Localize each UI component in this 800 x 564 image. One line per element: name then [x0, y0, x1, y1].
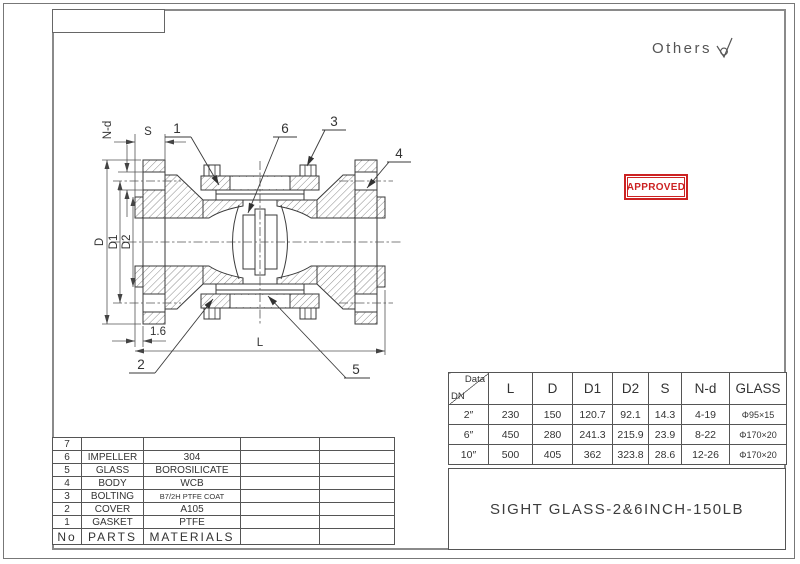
- drawing-sheet: Others APPROVED: [0, 0, 800, 564]
- dimension-data-table: Data DN L D D1 D2 S N-d GLASS 2″ 230 150…: [448, 372, 787, 465]
- left-raised-face-top: [135, 197, 143, 218]
- empty-cell: [320, 464, 395, 477]
- boss-bottom-left: [203, 266, 243, 284]
- data-row-6in: 6″ 450 280 241.3 215.9 23.9 8-22 Φ170×20: [449, 425, 787, 445]
- part-name: GLASS: [82, 464, 144, 477]
- cell-glass: Φ170×20: [730, 425, 787, 445]
- cell-glass: Φ170×20: [730, 445, 787, 465]
- empty-cell: [241, 529, 320, 545]
- part-name: BODY: [82, 477, 144, 490]
- parts-col-materials: MATERIALS: [144, 529, 241, 545]
- empty-cell: [320, 529, 395, 545]
- callout-3: 3: [330, 114, 338, 129]
- dim-label-d: D: [94, 238, 106, 246]
- parts-col-no: No: [53, 529, 82, 545]
- left-raised-face-bottom: [135, 266, 143, 287]
- dim-label-rf: 1.6: [150, 326, 166, 338]
- cell-nd: 4-19: [682, 405, 730, 425]
- cell-s: 28.6: [649, 445, 682, 465]
- empty-cell: [241, 451, 320, 464]
- part-material: B7/2H PTFE COAT: [144, 490, 241, 503]
- parts-row-7: 7: [53, 438, 395, 451]
- cell-d1: 120.7: [573, 405, 613, 425]
- part-no: 6: [53, 451, 82, 464]
- part-name: [82, 438, 144, 451]
- data-table-corner-cell: Data DN: [449, 373, 489, 405]
- part-material: BOROSILICATE: [144, 464, 241, 477]
- part-no: 5: [53, 464, 82, 477]
- empty-cell: [241, 438, 320, 451]
- cell-dn: 6″: [449, 425, 489, 445]
- part-name: IMPELLER: [82, 451, 144, 464]
- part-no: 7: [53, 438, 82, 451]
- dim-label-l: L: [257, 337, 264, 349]
- parts-materials-table: 7 6 IMPELLER 304 5 GLASS BOROSILICATE 4 …: [52, 437, 395, 545]
- surface-finish-note: Others: [652, 36, 740, 60]
- empty-cell: [320, 477, 395, 490]
- callout-1: 1: [173, 121, 181, 136]
- parts-header-row: No PARTS MATERIALS: [53, 529, 395, 545]
- cell-d1: 362: [573, 445, 613, 465]
- part-material: A105: [144, 503, 241, 516]
- approved-stamp-text: APPROVED: [627, 177, 685, 197]
- empty-cell: [241, 490, 320, 503]
- callout-5: 5: [352, 362, 360, 377]
- cell-nd: 12-26: [682, 445, 730, 465]
- cell-d: 280: [533, 425, 573, 445]
- boss-bottom-right: [277, 266, 317, 284]
- data-row-2in: 2″ 230 150 120.7 92.1 14.3 4-19 Φ95×15: [449, 405, 787, 425]
- surface-finish-icon: [714, 36, 740, 60]
- parts-row-4: 4 BODY WCB: [53, 477, 395, 490]
- parts-row-1: 1 GASKET PTFE: [53, 516, 395, 529]
- cell-d2: 323.8: [613, 445, 649, 465]
- cell-d1: 241.3: [573, 425, 613, 445]
- cell-dn: 2″: [449, 405, 489, 425]
- part-name: GASKET: [82, 516, 144, 529]
- approved-stamp: APPROVED: [624, 174, 688, 200]
- data-table-header-row: Data DN L D D1 D2 S N-d GLASS: [449, 373, 787, 405]
- part-no: 1: [53, 516, 82, 529]
- left-hub-bottom: [165, 266, 203, 309]
- title-block: SIGHT GLASS-2&6INCH-150LB: [448, 468, 786, 550]
- boss-top-left: [203, 200, 243, 218]
- right-raised-face-bottom: [377, 266, 385, 287]
- parts-col-parts: PARTS: [82, 529, 144, 545]
- cell-d2: 215.9: [613, 425, 649, 445]
- empty-cell: [320, 516, 395, 529]
- empty-cell: [320, 438, 395, 451]
- cell-nd: 8-22: [682, 425, 730, 445]
- cell-d2: 92.1: [613, 405, 649, 425]
- col-header-d1: D1: [573, 373, 613, 405]
- col-header-s: S: [649, 373, 682, 405]
- parts-row-2: 2 COVER A105: [53, 503, 395, 516]
- part-material: WCB: [144, 477, 241, 490]
- parts-row-6: 6 IMPELLER 304: [53, 451, 395, 464]
- cell-d: 150: [533, 405, 573, 425]
- drawing-title: SIGHT GLASS-2&6INCH-150LB: [490, 501, 744, 518]
- data-row-10in: 10″ 500 405 362 323.8 28.6 12-26 Φ170×20: [449, 445, 787, 465]
- right-hub-bottom: [317, 266, 355, 309]
- right-raised-face-top: [377, 197, 385, 218]
- col-header-l: L: [489, 373, 533, 405]
- sheet-corner-box: [52, 9, 165, 33]
- cell-l: 230: [489, 405, 533, 425]
- col-header-d2: D2: [613, 373, 649, 405]
- empty-cell: [320, 451, 395, 464]
- callout-2: 2: [137, 357, 145, 372]
- col-header-n-d: N-d: [682, 373, 730, 405]
- empty-cell: [320, 503, 395, 516]
- cell-glass: Φ95×15: [730, 405, 787, 425]
- empty-cell: [241, 477, 320, 490]
- dim-label-d2: D2: [121, 235, 133, 250]
- dim-label-n-d: N-d: [102, 121, 114, 140]
- parts-row-5: 5 GLASS BOROSILICATE: [53, 464, 395, 477]
- corner-label-data: Data: [465, 374, 485, 385]
- cell-l: 500: [489, 445, 533, 465]
- callout-6: 6: [281, 121, 289, 136]
- empty-cell: [241, 464, 320, 477]
- dim-label-d1: D1: [108, 235, 120, 250]
- dim-label-s: S: [144, 126, 152, 138]
- empty-cell: [320, 490, 395, 503]
- cell-d: 405: [533, 445, 573, 465]
- empty-cell: [241, 516, 320, 529]
- sight-glass-section-drawing: N-d D D1 D2 S 1.6 L 1 6 3 4 2 5: [55, 85, 445, 385]
- part-material: 304: [144, 451, 241, 464]
- cell-s: 14.3: [649, 405, 682, 425]
- part-name: BOLTING: [82, 490, 144, 503]
- part-no: 2: [53, 503, 82, 516]
- cell-dn: 10″: [449, 445, 489, 465]
- right-hub-top: [317, 175, 355, 218]
- cell-s: 23.9: [649, 425, 682, 445]
- part-no: 3: [53, 490, 82, 503]
- part-material: PTFE: [144, 516, 241, 529]
- col-header-glass: GLASS: [730, 373, 787, 405]
- parts-row-3: 3 BOLTING B7/2H PTFE COAT: [53, 490, 395, 503]
- boss-top-right: [277, 200, 317, 218]
- callout-4: 4: [395, 146, 403, 161]
- cell-l: 450: [489, 425, 533, 445]
- left-hub-top: [165, 175, 203, 218]
- corner-label-dn: DN: [451, 391, 465, 402]
- others-label: Others: [652, 40, 712, 57]
- part-no: 4: [53, 477, 82, 490]
- part-name: COVER: [82, 503, 144, 516]
- empty-cell: [241, 503, 320, 516]
- part-material: [144, 438, 241, 451]
- col-header-d: D: [533, 373, 573, 405]
